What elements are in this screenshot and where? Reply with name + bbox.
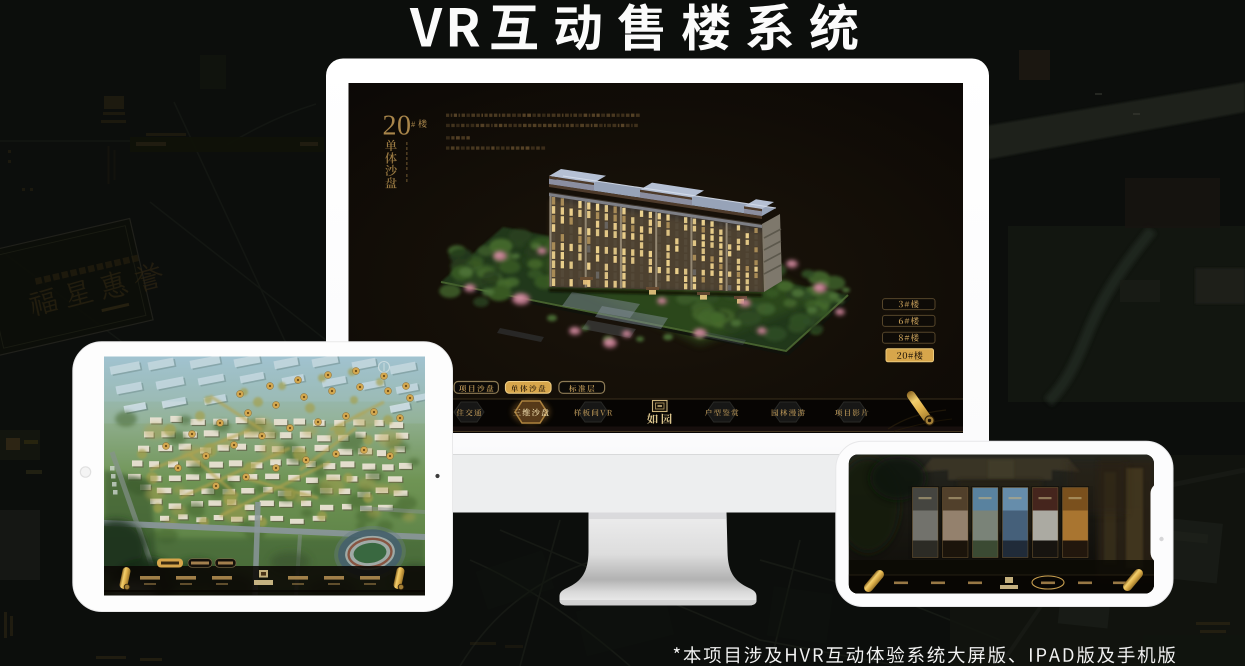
svg-text:20: 20 (383, 111, 412, 142)
